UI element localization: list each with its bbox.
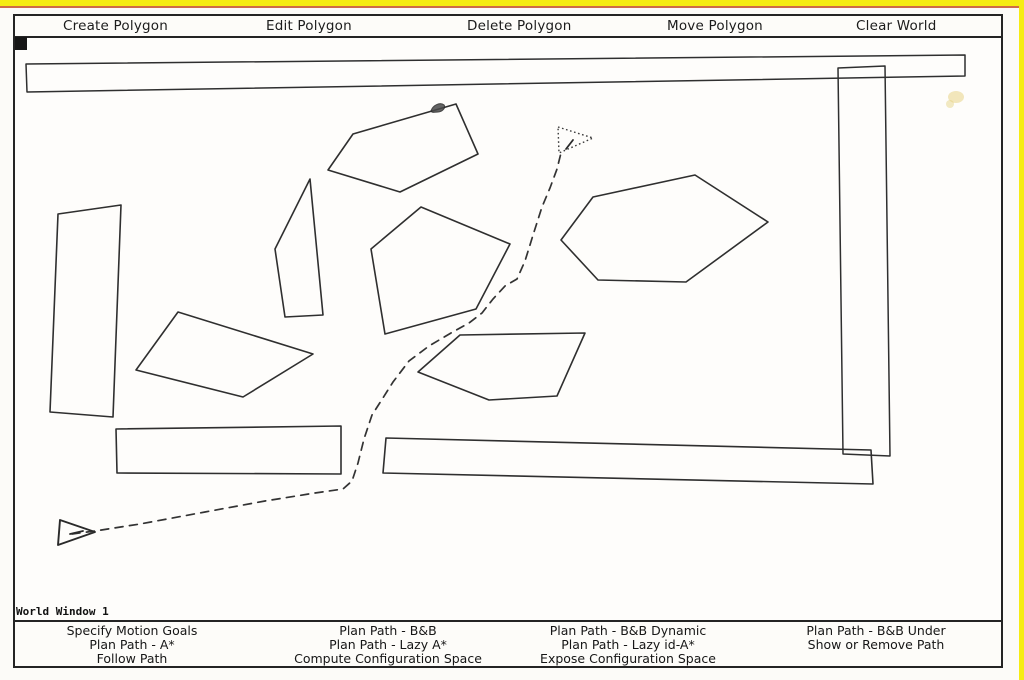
scan-edge-right bbox=[1019, 0, 1024, 680]
ink-scribble-mark bbox=[431, 104, 445, 112]
menu-specify-motion-goals[interactable]: Specify Motion Goals bbox=[67, 624, 198, 638]
paper-stain bbox=[946, 100, 954, 108]
menu-delete-polygon[interactable]: Delete Polygon bbox=[467, 18, 572, 34]
menu-plan-path-lazy-astar[interactable]: Plan Path - Lazy A* bbox=[294, 638, 482, 652]
menu-follow-path[interactable]: Follow Path bbox=[67, 652, 198, 666]
menu-plan-path-bb-dynamic[interactable]: Plan Path - B&B Dynamic bbox=[540, 624, 716, 638]
obstacle-polygon[interactable] bbox=[275, 179, 323, 317]
menu-create-polygon[interactable]: Create Polygon bbox=[63, 18, 168, 34]
obstacle-polygon[interactable] bbox=[116, 426, 341, 474]
goal-robot-marker[interactable] bbox=[558, 127, 593, 153]
bottom-menu-col-1: Specify Motion Goals Plan Path - A* Foll… bbox=[67, 624, 198, 666]
obstacle-polygon[interactable] bbox=[50, 205, 121, 417]
menu-expose-config-space[interactable]: Expose Configuration Space bbox=[540, 652, 716, 666]
obstacle-polygon[interactable] bbox=[418, 333, 585, 400]
obstacle-polygon[interactable] bbox=[838, 66, 890, 456]
window-title-label: World Window 1 bbox=[16, 605, 109, 618]
menu-plan-path-bb-under[interactable]: Plan Path - B&B Under bbox=[806, 624, 945, 638]
scan-edge-top bbox=[0, 0, 1024, 8]
obstacle-polygon[interactable] bbox=[136, 312, 313, 397]
bottom-menu-col-3: Plan Path - B&B Dynamic Plan Path - Lazy… bbox=[540, 624, 716, 666]
bottom-menu-col-4: Plan Path - B&B Under Show or Remove Pat… bbox=[806, 624, 945, 652]
planned-path bbox=[72, 153, 561, 534]
top-menu-bar: Create Polygon Edit Polygon Delete Polyg… bbox=[15, 16, 1001, 38]
bottom-menu-col-2: Plan Path - B&B Plan Path - Lazy A* Comp… bbox=[294, 624, 482, 666]
world-window: Create Polygon Edit Polygon Delete Polyg… bbox=[13, 14, 1003, 668]
menu-plan-path-astar[interactable]: Plan Path - A* bbox=[67, 638, 198, 652]
obstacle-polygon[interactable] bbox=[26, 55, 965, 92]
bottom-menu-bar: Specify Motion Goals Plan Path - A* Foll… bbox=[15, 620, 1001, 666]
obstacle-polygon[interactable] bbox=[371, 207, 510, 334]
menu-plan-path-bb[interactable]: Plan Path - B&B bbox=[294, 624, 482, 638]
menu-clear-world[interactable]: Clear World bbox=[856, 18, 936, 34]
menu-compute-config-space[interactable]: Compute Configuration Space bbox=[294, 652, 482, 666]
menu-plan-path-lazy-idastar[interactable]: Plan Path - Lazy id-A* bbox=[540, 638, 716, 652]
obstacle-polygon[interactable] bbox=[383, 438, 873, 484]
screenshot-page: Create Polygon Edit Polygon Delete Polyg… bbox=[0, 0, 1024, 680]
obstacle-polygon[interactable] bbox=[561, 175, 768, 282]
menu-move-polygon[interactable]: Move Polygon bbox=[667, 18, 763, 34]
menu-show-or-remove-path[interactable]: Show or Remove Path bbox=[806, 638, 945, 652]
world-canvas[interactable] bbox=[15, 38, 1001, 624]
menu-edit-polygon[interactable]: Edit Polygon bbox=[266, 18, 352, 34]
obstacle-polygon[interactable] bbox=[328, 104, 478, 192]
